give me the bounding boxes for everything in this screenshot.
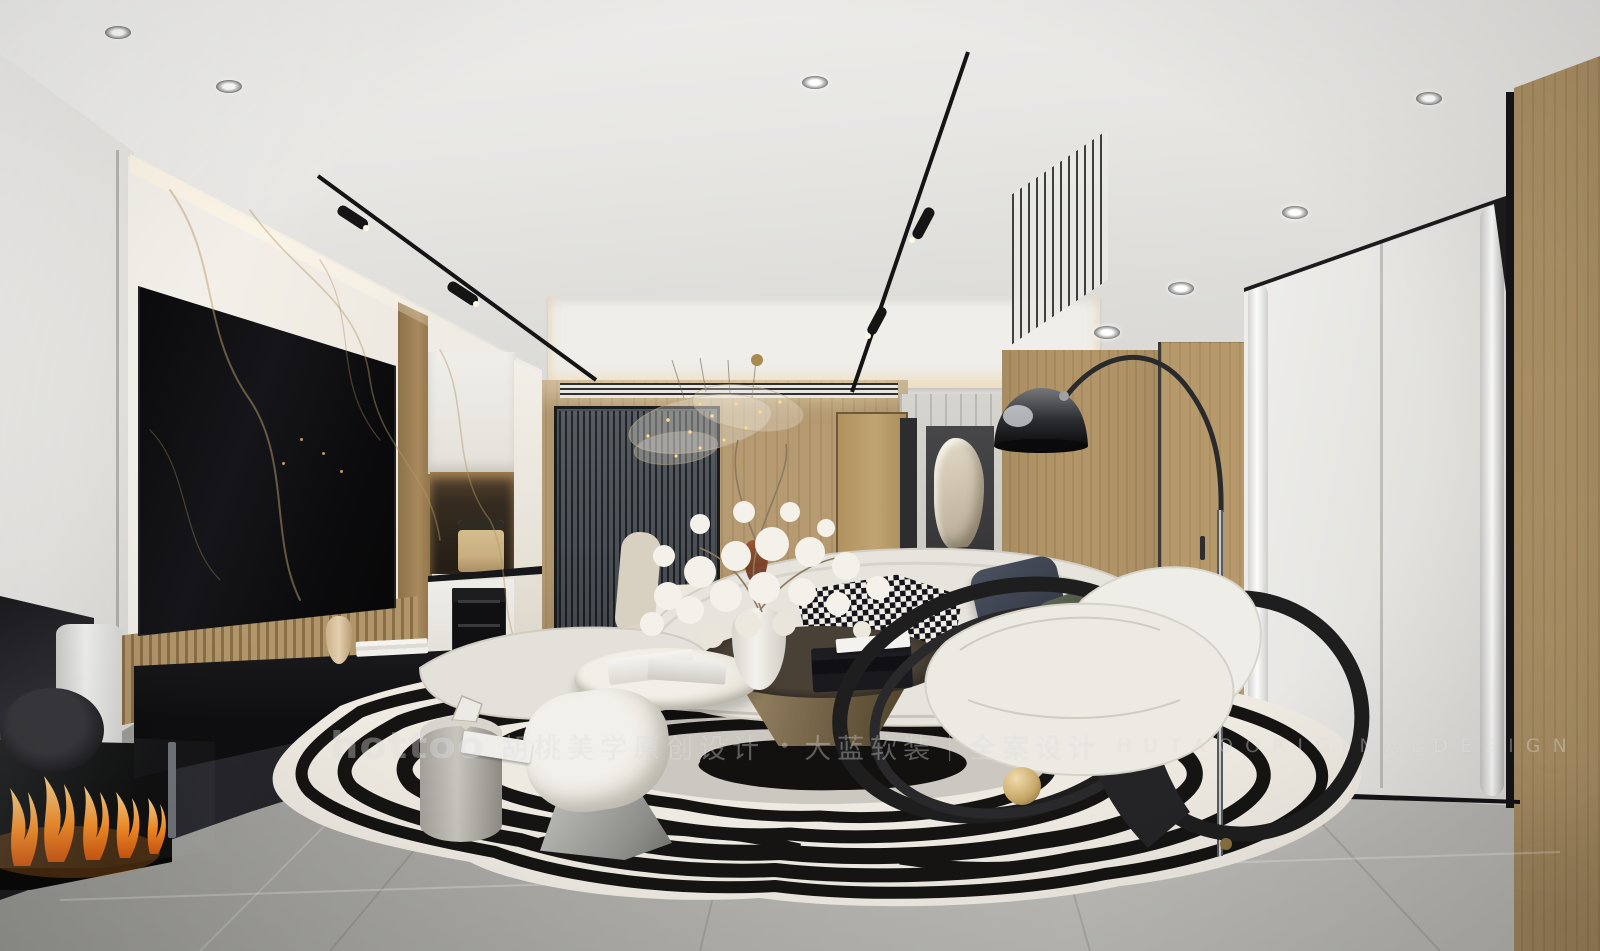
wardrobe-panel-seam [1380, 242, 1383, 788]
built-in-oven [452, 588, 506, 654]
tv-reflection-sparkle [340, 470, 343, 473]
oven-handle [458, 624, 500, 627]
watermark-brand-en: H U T A O O R I G I N A L D E S I G N [1117, 735, 1570, 757]
kitchen-upper-cabinets [428, 352, 516, 474]
watermark-dot: • [781, 735, 788, 758]
recessed-downlight [216, 80, 242, 93]
oven-handle [458, 600, 500, 603]
living-room-render: hottoo 胡桃美学原创设计 • 大蓝软装｜全案设计 H U T A O O … [0, 0, 1600, 951]
watermark-services-cn: 大蓝软装｜全案设计 [804, 727, 1101, 766]
recessed-downlight [1094, 326, 1120, 339]
door-handle [1200, 536, 1205, 560]
black-side-table [0, 688, 104, 772]
recessed-downlight [1416, 92, 1442, 105]
ac-linear-diffuser [560, 383, 898, 398]
watermark-logo: hottoo [330, 725, 485, 767]
watermark: hottoo 胡桃美学原创设计 • 大蓝软装｜全案设计 H U T A O O … [330, 722, 1570, 770]
coffee-machine [458, 520, 504, 572]
watermark-brand-cn: 胡桃美学原创设计 [501, 727, 765, 766]
wardrobe-curved-edge [1248, 284, 1268, 784]
tv-reflection-sparkle [300, 438, 303, 441]
recessed-downlight [105, 26, 131, 39]
marble-pillar [514, 360, 542, 690]
wood-door-right [1158, 342, 1247, 706]
recessed-downlight [1168, 282, 1194, 295]
wardrobe-curved-edge [1480, 206, 1504, 796]
wardrobe-shadow-gap [1506, 92, 1514, 808]
wood-trim-panel [398, 298, 432, 644]
glass-screen-bracket [168, 742, 176, 838]
wood-panel-far-right [1512, 56, 1600, 951]
tv-reflection-sparkle [322, 452, 325, 455]
recessed-downlight [1282, 206, 1308, 219]
recessed-downlight [802, 76, 828, 89]
tv-reflection-sparkle [282, 462, 285, 465]
